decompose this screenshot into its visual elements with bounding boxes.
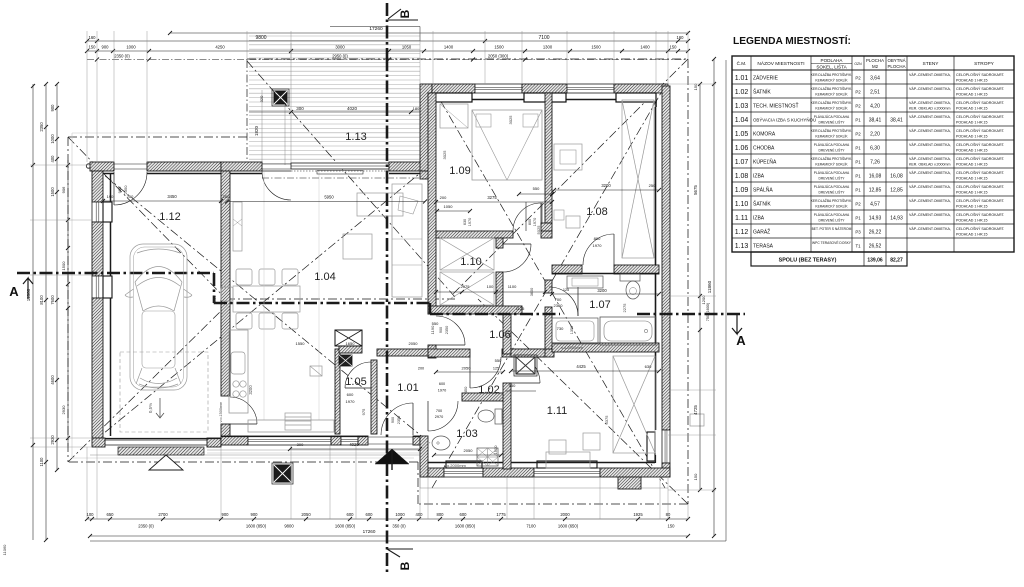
- svg-text:1.07: 1.07: [735, 159, 749, 166]
- svg-text:200: 200: [418, 367, 424, 371]
- svg-text:PODHĽAD 1 HR.15: PODHĽAD 1 HR.15: [956, 107, 988, 111]
- svg-text:900: 900: [251, 512, 259, 517]
- svg-text:1.11: 1.11: [735, 215, 748, 222]
- svg-text:2970: 2970: [435, 415, 443, 419]
- svg-text:P3: P3: [855, 230, 861, 235]
- svg-text:650: 650: [107, 512, 115, 517]
- svg-text:T1: T1: [855, 244, 861, 249]
- svg-text:2350: 2350: [445, 326, 449, 334]
- svg-text:B: B: [398, 9, 412, 18]
- svg-text:300: 300: [296, 106, 304, 111]
- svg-text:180: 180: [413, 106, 420, 111]
- svg-text:82,27: 82,27: [890, 258, 903, 264]
- svg-text:190: 190: [107, 194, 114, 199]
- svg-text:A: A: [736, 333, 746, 348]
- svg-text:3025: 3025: [508, 115, 513, 125]
- svg-text:VÁP.-CEMENT.OMIETKA,: VÁP.-CEMENT.OMIETKA,: [909, 185, 951, 189]
- svg-text:KERAMICKÝ SOKLÍK: KERAMICKÝ SOKLÍK: [815, 107, 848, 111]
- svg-text:1925: 1925: [633, 512, 643, 517]
- svg-text:SPÁLŇA: SPÁLŇA: [753, 187, 773, 194]
- svg-text:1000: 1000: [126, 45, 136, 50]
- svg-text:1970: 1970: [346, 399, 356, 404]
- svg-text:2050: 2050: [301, 512, 311, 517]
- svg-text:CELOPLOŠNÝ SADROKART.: CELOPLOŠNÝ SADROKART.: [956, 72, 1004, 77]
- svg-text:1.01: 1.01: [397, 382, 418, 394]
- svg-text:P2: P2: [855, 104, 861, 109]
- svg-text:16,08: 16,08: [890, 174, 903, 180]
- svg-text:4,20: 4,20: [870, 104, 880, 110]
- svg-text:14,93: 14,93: [869, 216, 882, 222]
- svg-text:1500: 1500: [493, 445, 498, 455]
- svg-text:A: A: [9, 284, 19, 299]
- svg-text:160: 160: [677, 35, 685, 40]
- svg-text:250: 250: [649, 183, 656, 188]
- svg-text:3200: 3200: [597, 288, 607, 293]
- svg-text:CELOPLOŠNÝ SADROKART.: CELOPLOŠNÝ SADROKART.: [956, 100, 1004, 105]
- svg-text:2350: 2350: [397, 416, 401, 424]
- svg-text:5950: 5950: [324, 195, 334, 200]
- svg-text:VÁP.-CEMENT.OMIETKA,: VÁP.-CEMENT.OMIETKA,: [909, 115, 951, 119]
- svg-text:1.01: 1.01: [735, 75, 749, 82]
- svg-text:1190: 1190: [430, 325, 435, 334]
- svg-text:P1: P1: [855, 188, 861, 193]
- svg-text:1500: 1500: [591, 45, 601, 50]
- svg-text:11060: 11060: [2, 544, 7, 556]
- svg-text:3000: 3000: [335, 45, 345, 50]
- svg-text:KER.DLAŽBA PROTIŠMYK.: KER.DLAŽBA PROTIŠMYK.: [811, 100, 853, 105]
- svg-text:P1: P1: [855, 174, 861, 179]
- svg-text:400: 400: [50, 155, 55, 163]
- svg-text:1550: 1550: [296, 341, 306, 346]
- svg-text:906: 906: [61, 186, 66, 193]
- svg-text:8100: 8100: [39, 295, 44, 305]
- svg-text:14,93: 14,93: [890, 216, 903, 222]
- svg-text:7100: 7100: [526, 524, 536, 529]
- svg-text:PODHĽAD 1 HR.15: PODHĽAD 1 HR.15: [956, 79, 988, 83]
- svg-text:2360: 2360: [554, 303, 564, 308]
- svg-text:9800: 9800: [284, 524, 294, 529]
- svg-text:16,08: 16,08: [869, 174, 882, 180]
- svg-text:IZBA: IZBA: [753, 216, 765, 222]
- svg-text:630: 630: [463, 219, 467, 225]
- svg-text:900: 900: [439, 327, 443, 333]
- svg-text:KER.DLAŽBA PROTIŠMYK.: KER.DLAŽBA PROTIŠMYK.: [811, 128, 853, 133]
- svg-text:v.o.2000mm: v.o.2000mm: [561, 345, 583, 350]
- svg-text:VÁP.-CEMENT.OMIETKA,: VÁP.-CEMENT.OMIETKA,: [909, 171, 951, 175]
- svg-text:1000: 1000: [50, 134, 55, 144]
- svg-text:38,41: 38,41: [869, 118, 882, 124]
- svg-text:1600 (850): 1600 (850): [246, 524, 267, 529]
- svg-text:630: 630: [645, 364, 652, 369]
- svg-text:SOKEL, LIŠTA: SOKEL, LIŠTA: [816, 64, 847, 70]
- svg-text:1.04: 1.04: [314, 271, 335, 283]
- svg-text:1.13: 1.13: [345, 131, 366, 143]
- svg-text:VÁP.-CEMENT.OMIETKA,: VÁP.-CEMENT.OMIETKA,: [909, 143, 951, 147]
- svg-text:3375: 3375: [604, 415, 609, 425]
- svg-text:4250: 4250: [215, 45, 225, 50]
- svg-text:KER. OBKLAD v.2000mm: KER. OBKLAD v.2000mm: [909, 107, 950, 111]
- svg-text:2000: 2000: [560, 512, 570, 517]
- svg-text:1.13: 1.13: [735, 243, 749, 250]
- svg-text:1.06: 1.06: [489, 329, 510, 341]
- svg-text:B: B: [398, 561, 412, 570]
- svg-text:2,51: 2,51: [870, 90, 880, 96]
- svg-text:1970: 1970: [533, 218, 537, 226]
- svg-text:CELOPLOŠNÝ SADROKART.: CELOPLOŠNÝ SADROKART.: [956, 198, 1004, 203]
- svg-text:VÁP.-CEMENT.OMIETKA,: VÁP.-CEMENT.OMIETKA,: [909, 157, 951, 161]
- svg-text:7600: 7600: [50, 295, 55, 305]
- svg-text:4425: 4425: [576, 364, 586, 369]
- svg-text:2050: 2050: [409, 341, 419, 346]
- svg-text:VÁP.-CEMENT.OMIETKA,: VÁP.-CEMENT.OMIETKA,: [909, 73, 951, 77]
- svg-text:750 (1600): 750 (1600): [706, 302, 710, 321]
- svg-text:1350: 1350: [570, 326, 574, 334]
- svg-text:KER. OBKLAD v.2000mm: KER. OBKLAD v.2000mm: [909, 163, 950, 167]
- svg-text:3450: 3450: [167, 194, 177, 199]
- svg-text:PODHĽAD 1 HR.15: PODHĽAD 1 HR.15: [956, 177, 988, 181]
- svg-text:0,5%: 0,5%: [148, 403, 153, 413]
- svg-text:1100: 1100: [508, 284, 517, 289]
- svg-text:2350: 2350: [123, 185, 128, 195]
- svg-text:700: 700: [436, 409, 442, 413]
- svg-text:OBÝVACIA IZBA S KUCHYŇOU: OBÝVACIA IZBA S KUCHYŇOU: [753, 118, 816, 123]
- svg-text:P2: P2: [855, 202, 861, 207]
- svg-text:STROPY: STROPY: [974, 61, 995, 67]
- svg-text:PLOCHA: PLOCHA: [866, 58, 884, 63]
- svg-text:12,85: 12,85: [869, 188, 882, 194]
- svg-text:600: 600: [347, 512, 355, 517]
- svg-text:KER.DLAŽBA PROTIŠMYK.: KER.DLAŽBA PROTIŠMYK.: [811, 72, 853, 77]
- svg-text:DREVENÉ LIŠTY: DREVENÉ LIŠTY: [818, 176, 845, 181]
- svg-text:P2: P2: [855, 76, 861, 81]
- svg-text:150: 150: [693, 473, 698, 480]
- svg-text:600: 600: [347, 392, 354, 397]
- svg-text:2350: 2350: [39, 122, 44, 132]
- svg-text:CELOPLOŠNÝ SADROKART.: CELOPLOŠNÝ SADROKART.: [956, 114, 1004, 119]
- svg-text:1.11: 1.11: [547, 405, 568, 417]
- svg-text:1.06: 1.06: [735, 145, 749, 152]
- svg-text:350 (0): 350 (0): [392, 524, 406, 529]
- svg-text:PODLAHA: PODLAHA: [821, 58, 844, 63]
- svg-text:300: 300: [297, 442, 304, 447]
- svg-text:125: 125: [563, 288, 569, 292]
- svg-text:600: 600: [460, 512, 468, 517]
- svg-text:200: 200: [223, 194, 230, 199]
- svg-text:3,64: 3,64: [870, 76, 880, 82]
- svg-text:2050: 2050: [464, 448, 474, 453]
- svg-text:900: 900: [222, 512, 230, 517]
- svg-text:700: 700: [555, 297, 562, 302]
- svg-text:2700: 2700: [158, 512, 168, 517]
- svg-text:VÁP.-CEMENT.OMIETKA,: VÁP.-CEMENT.OMIETKA,: [909, 199, 951, 203]
- svg-text:TERASA: TERASA: [753, 244, 774, 250]
- svg-text:KER.DLAŽBA PROTIŠMYK.: KER.DLAŽBA PROTIŠMYK.: [811, 198, 853, 203]
- svg-text:1.05: 1.05: [345, 376, 366, 388]
- svg-text:P2: P2: [855, 90, 861, 95]
- svg-text:PODHĽAD 1 HR.15: PODHĽAD 1 HR.15: [956, 149, 988, 153]
- svg-text:900: 900: [102, 45, 110, 50]
- svg-text:3200: 3200: [248, 385, 253, 395]
- svg-text:CELOPLOŠNÝ SADROKART.: CELOPLOŠNÝ SADROKART.: [956, 86, 1004, 91]
- svg-text:1.03: 1.03: [735, 103, 749, 110]
- svg-text:1500: 1500: [61, 261, 66, 271]
- svg-text:KERAMICKÝ SOKLÍK: KERAMICKÝ SOKLÍK: [815, 205, 848, 209]
- svg-text:450: 450: [463, 386, 468, 393]
- svg-text:KOMORA: KOMORA: [753, 132, 776, 138]
- svg-text:1500: 1500: [50, 187, 55, 197]
- svg-text:CELOPLOŠNÝ SADROKART.: CELOPLOŠNÝ SADROKART.: [956, 184, 1004, 189]
- svg-text:5675: 5675: [693, 185, 698, 195]
- svg-text:17260: 17260: [369, 26, 383, 32]
- svg-text:PLÁVAJÚCA PODLAHA: PLÁVAJÚCA PODLAHA: [814, 115, 850, 119]
- svg-text:PLÁVAJÚCA PODLAHA: PLÁVAJÚCA PODLAHA: [814, 143, 850, 147]
- svg-text:800: 800: [437, 512, 445, 517]
- svg-text:VÁP.-CEMENT.OMIETKA,: VÁP.-CEMENT.OMIETKA,: [909, 213, 951, 217]
- svg-text:PODHĽAD 1 HR.15: PODHĽAD 1 HR.15: [956, 135, 988, 139]
- svg-text:VÁP.-CEMENT.OMIETKA,: VÁP.-CEMENT.OMIETKA,: [909, 227, 951, 231]
- svg-text:PODHĽAD 1 HR.15: PODHĽAD 1 HR.15: [956, 93, 988, 97]
- svg-text:3200: 3200: [601, 183, 611, 188]
- svg-text:17260: 17260: [363, 529, 376, 534]
- svg-text:CELOPLOŠNÝ SADROKART.: CELOPLOŠNÝ SADROKART.: [956, 212, 1004, 217]
- svg-text:PODHĽAD 1 HR.15: PODHĽAD 1 HR.15: [956, 205, 988, 209]
- svg-text:1.10: 1.10: [460, 256, 481, 268]
- svg-text:1.04: 1.04: [735, 117, 749, 124]
- svg-text:1.10: 1.10: [735, 201, 749, 208]
- svg-text:SPOLU (BEZ TERASY): SPOLU (BEZ TERASY): [779, 258, 837, 264]
- svg-text:11860: 11860: [707, 280, 712, 293]
- svg-text:KER.DLAŽBA PROTIŠMYK.: KER.DLAŽBA PROTIŠMYK.: [811, 86, 853, 91]
- svg-text:ZÁDVERIE: ZÁDVERIE: [753, 75, 779, 82]
- svg-text:1600 (850): 1600 (850): [455, 524, 476, 529]
- svg-text:1100: 1100: [39, 457, 44, 467]
- svg-text:P1: P1: [855, 160, 861, 165]
- svg-text:1000: 1000: [395, 512, 405, 517]
- svg-text:VÁP.-CEMENT.OMIETKA,: VÁP.-CEMENT.OMIETKA,: [909, 101, 951, 105]
- svg-text:P2: P2: [855, 132, 861, 137]
- svg-text:PLÁVAJÚCA PODLAHA: PLÁVAJÚCA PODLAHA: [814, 213, 850, 217]
- svg-text:CHODBA: CHODBA: [753, 146, 775, 152]
- svg-text:3025: 3025: [442, 150, 447, 160]
- svg-text:STENY: STENY: [923, 61, 940, 67]
- svg-text:1970: 1970: [468, 218, 472, 226]
- svg-text:GARÁŽ: GARÁŽ: [753, 228, 770, 236]
- svg-text:2930: 2930: [50, 435, 55, 445]
- svg-text:1050: 1050: [444, 204, 454, 209]
- svg-text:1.02: 1.02: [735, 89, 749, 96]
- svg-text:2350 (0): 2350 (0): [114, 54, 130, 59]
- svg-text:PODHĽAD 1 HR.15: PODHĽAD 1 HR.15: [956, 191, 988, 195]
- svg-text:OZN: OZN: [854, 62, 862, 66]
- svg-text:38,41: 38,41: [890, 118, 903, 124]
- svg-text:7600: 7600: [212, 295, 217, 305]
- svg-text:v.o.1500mm: v.o.1500mm: [219, 402, 223, 423]
- svg-text:2950 (0): 2950 (0): [332, 54, 348, 59]
- svg-text:2930: 2930: [61, 405, 66, 415]
- svg-text:1.12: 1.12: [159, 211, 180, 223]
- svg-text:2350 (0): 2350 (0): [138, 524, 154, 529]
- svg-text:1125: 1125: [516, 306, 525, 311]
- svg-text:1650: 1650: [346, 341, 356, 346]
- svg-text:9800: 9800: [255, 35, 266, 41]
- svg-text:4020: 4020: [347, 106, 358, 111]
- svg-text:2,20: 2,20: [870, 132, 880, 138]
- svg-text:DREVENÉ LIŠTY: DREVENÉ LIŠTY: [818, 120, 845, 125]
- svg-text:26,22: 26,22: [869, 230, 882, 236]
- svg-text:IZBA: IZBA: [753, 174, 765, 180]
- svg-text:1600 (650): 1600 (650): [558, 524, 579, 529]
- svg-text:DREVENÉ LIŠTY: DREVENÉ LIŠTY: [818, 190, 845, 195]
- svg-text:800: 800: [528, 219, 532, 225]
- svg-text:139,06: 139,06: [867, 258, 883, 264]
- svg-text:BET. POTER S NÁTEROM: BET. POTER S NÁTEROM: [812, 227, 852, 231]
- svg-text:PLOCHA: PLOCHA: [887, 64, 905, 69]
- svg-text:1820: 1820: [254, 125, 259, 136]
- svg-text:1.03: 1.03: [456, 428, 477, 440]
- svg-text:4020: 4020: [349, 442, 359, 447]
- svg-text:125: 125: [493, 367, 499, 371]
- svg-text:1.05: 1.05: [735, 131, 749, 138]
- svg-text:P1: P1: [855, 146, 861, 151]
- svg-text:1500: 1500: [494, 45, 504, 50]
- svg-text:550: 550: [533, 186, 540, 191]
- svg-text:100: 100: [87, 512, 95, 517]
- svg-text:550: 550: [509, 383, 516, 388]
- svg-text:CELOPLOŠNÝ SADROKART.: CELOPLOŠNÝ SADROKART.: [956, 226, 1004, 231]
- svg-text:1.12: 1.12: [735, 229, 749, 236]
- svg-text:26,52: 26,52: [869, 244, 882, 250]
- svg-text:3275: 3275: [487, 195, 497, 200]
- svg-text:900: 900: [117, 186, 122, 193]
- svg-text:KER.DLAŽBA PROTIŠMYK.: KER.DLAŽBA PROTIŠMYK.: [811, 156, 853, 161]
- svg-text:M2: M2: [872, 64, 879, 69]
- svg-text:1600 (850): 1600 (850): [335, 524, 356, 529]
- svg-text:1400: 1400: [640, 45, 650, 50]
- svg-text:4600: 4600: [50, 375, 55, 385]
- svg-text:7,26: 7,26: [870, 160, 880, 166]
- svg-text:1970: 1970: [593, 243, 603, 248]
- svg-text:1775: 1775: [496, 512, 506, 517]
- svg-text:2050: 2050: [462, 366, 472, 371]
- svg-text:80: 80: [666, 512, 671, 517]
- svg-text:P1: P1: [855, 216, 861, 221]
- svg-text:2050 (300): 2050 (300): [488, 54, 509, 59]
- svg-text:800: 800: [594, 236, 601, 241]
- svg-text:600: 600: [366, 512, 374, 517]
- svg-text:4725: 4725: [693, 405, 698, 415]
- svg-text:550: 550: [432, 321, 439, 326]
- svg-text:11860: 11860: [26, 288, 31, 301]
- svg-text:CELOPLOŠNÝ SADROKART.: CELOPLOŠNÝ SADROKART.: [956, 142, 1004, 147]
- svg-text:730: 730: [557, 326, 564, 331]
- svg-text:PLÁVAJÚCA PODLAHA: PLÁVAJÚCA PODLAHA: [814, 171, 850, 175]
- svg-text:KERAMICKÝ SOKLÍK: KERAMICKÝ SOKLÍK: [815, 93, 848, 97]
- svg-text:1970: 1970: [438, 389, 446, 393]
- svg-text:LEGENDA MIESTNOSTÍ:: LEGENDA MIESTNOSTÍ:: [733, 34, 851, 47]
- svg-text:CELOPLOŠNÝ SADROKART.: CELOPLOŠNÝ SADROKART.: [956, 156, 1004, 161]
- svg-text:CELOPLOŠNÝ SADROKART.: CELOPLOŠNÝ SADROKART.: [956, 128, 1004, 133]
- svg-text:TECH. MIESTNOSŤ: TECH. MIESTNOSŤ: [753, 102, 799, 110]
- svg-text:PODHĽAD 1 HR.15: PODHĽAD 1 HR.15: [956, 219, 988, 223]
- svg-text:320: 320: [259, 95, 264, 102]
- svg-text:550: 550: [495, 358, 502, 363]
- svg-text:VÁP.-CEMENT.OMIETKA,: VÁP.-CEMENT.OMIETKA,: [909, 87, 951, 91]
- svg-text:100: 100: [487, 284, 494, 289]
- svg-text:1.08: 1.08: [735, 173, 749, 180]
- svg-text:P1: P1: [855, 118, 861, 123]
- svg-text:KÚPEĽŇA: KÚPEĽŇA: [753, 159, 777, 166]
- svg-text:150: 150: [668, 524, 676, 529]
- svg-text:1.09: 1.09: [735, 187, 749, 194]
- svg-text:400: 400: [416, 512, 424, 517]
- svg-text:1.07: 1.07: [589, 299, 610, 311]
- svg-text:7100: 7100: [538, 35, 549, 41]
- svg-text:900: 900: [50, 104, 55, 112]
- svg-text:v.o.2000mm: v.o.2000mm: [444, 463, 466, 468]
- svg-text:600: 600: [439, 382, 445, 386]
- svg-text:DREVENÉ LIŠTY: DREVENÉ LIŠTY: [818, 148, 845, 153]
- svg-text:PODHĽAD 1 HR.15: PODHĽAD 1 HR.15: [956, 233, 988, 237]
- svg-text:KERAMICKÝ SOKLÍK: KERAMICKÝ SOKLÍK: [815, 135, 848, 139]
- svg-text:200: 200: [440, 195, 447, 200]
- svg-text:1.09: 1.09: [449, 165, 470, 177]
- svg-text:150: 150: [670, 45, 678, 50]
- svg-text:1300: 1300: [543, 45, 553, 50]
- svg-text:PODHĽAD 1 HR.15: PODHĽAD 1 HR.15: [956, 121, 988, 125]
- svg-text:975: 975: [361, 408, 366, 415]
- svg-text:1.08: 1.08: [586, 206, 607, 218]
- svg-text:PLÁVAJÚCA PODLAHA: PLÁVAJÚCA PODLAHA: [814, 185, 850, 189]
- svg-text:ŠATNÍK: ŠATNÍK: [753, 201, 771, 208]
- svg-text:2075: 2075: [461, 284, 471, 289]
- svg-text:160: 160: [89, 35, 97, 40]
- svg-text:KERAMICKÝ SOKLÍK: KERAMICKÝ SOKLÍK: [815, 79, 848, 83]
- svg-text:NÁZOV MIESTNOSTI: NÁZOV MIESTNOSTI: [757, 60, 804, 67]
- svg-text:WPC TERASOVÉ DOSKY: WPC TERASOVÉ DOSKY: [812, 240, 852, 245]
- svg-text:12,85: 12,85: [890, 188, 903, 194]
- svg-text:VÁP.-CEMENT.OMIETKA,: VÁP.-CEMENT.OMIETKA,: [909, 129, 951, 133]
- svg-text:KERAMICKÝ SOKLÍK: KERAMICKÝ SOKLÍK: [815, 163, 848, 167]
- svg-text:ŠATNÍK: ŠATNÍK: [753, 89, 771, 96]
- svg-text:Č.M.: Č.M.: [737, 60, 747, 66]
- svg-text:150: 150: [89, 45, 97, 50]
- svg-text:CELOPLOŠNÝ SADROKART.: CELOPLOŠNÝ SADROKART.: [956, 170, 1004, 175]
- svg-text:PODHĽAD 1 HR.15: PODHĽAD 1 HR.15: [956, 163, 988, 167]
- svg-text:1050: 1050: [402, 45, 412, 50]
- svg-text:OBYTNÁ: OBYTNÁ: [887, 58, 905, 63]
- svg-text:1.02: 1.02: [478, 384, 499, 396]
- svg-text:2275: 2275: [622, 303, 627, 313]
- svg-text:4,57: 4,57: [870, 202, 880, 208]
- svg-text:1400: 1400: [444, 45, 454, 50]
- svg-text:6,30: 6,30: [870, 146, 880, 152]
- svg-text:900: 900: [391, 417, 395, 423]
- svg-text:DREVENÉ LIŠTY: DREVENÉ LIŠTY: [818, 218, 845, 223]
